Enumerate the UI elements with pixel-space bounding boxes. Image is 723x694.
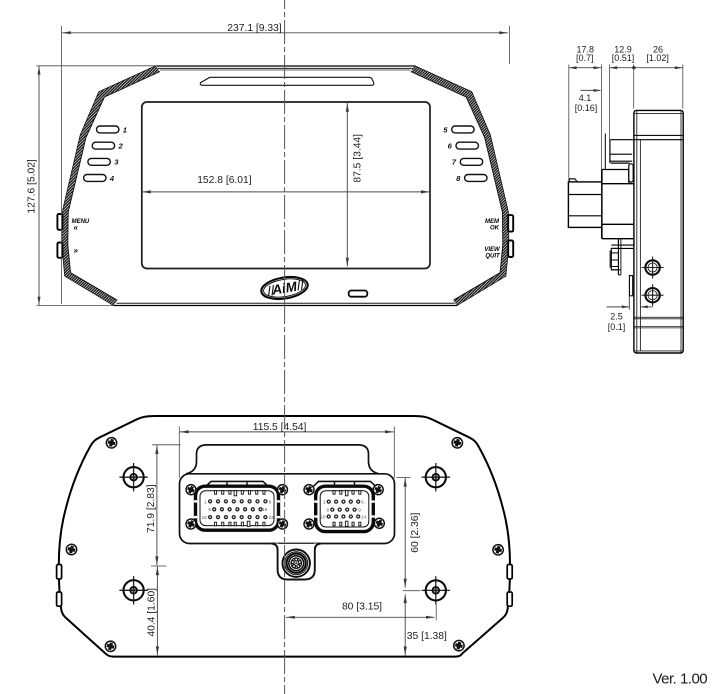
svg-text:4.1: 4.1 bbox=[579, 93, 592, 103]
svg-text:40.4 [1.60]: 40.4 [1.60] bbox=[146, 588, 157, 637]
svg-text:QUIT: QUIT bbox=[485, 254, 501, 260]
svg-text:14: 14 bbox=[361, 514, 367, 519]
svg-text:1: 1 bbox=[123, 125, 127, 134]
svg-text:15: 15 bbox=[262, 507, 268, 512]
svg-text:[0.7]: [0.7] bbox=[576, 53, 594, 63]
svg-text:2.5: 2.5 bbox=[610, 311, 623, 321]
svg-text:[0.16]: [0.16] bbox=[575, 103, 598, 113]
svg-text:60 [2.36]: 60 [2.36] bbox=[410, 513, 421, 553]
svg-text:10: 10 bbox=[320, 514, 326, 519]
svg-text:[0.1]: [0.1] bbox=[608, 322, 626, 332]
svg-text:23: 23 bbox=[269, 515, 275, 520]
svg-text:[0.51]: [0.51] bbox=[612, 53, 635, 63]
svg-text:5: 5 bbox=[361, 500, 364, 505]
svg-text:8: 8 bbox=[269, 499, 272, 504]
svg-text:237.1 [9.33]: 237.1 [9.33] bbox=[227, 23, 282, 34]
svg-text:16: 16 bbox=[202, 515, 208, 520]
svg-text:1: 1 bbox=[323, 500, 326, 505]
svg-text:Ver. 1.00: Ver. 1.00 bbox=[652, 671, 707, 688]
svg-text:127.6 [5.02]: 127.6 [5.02] bbox=[26, 159, 37, 214]
svg-text:6: 6 bbox=[326, 508, 329, 513]
svg-text:MEM: MEM bbox=[485, 219, 500, 225]
svg-text:152.8 [6.01]: 152.8 [6.01] bbox=[197, 175, 252, 186]
svg-text:«: « bbox=[74, 223, 79, 232]
svg-text:35 [1.38]: 35 [1.38] bbox=[407, 631, 447, 642]
svg-text:71.9 [2.83]: 71.9 [2.83] bbox=[146, 484, 157, 533]
svg-text:VIEW: VIEW bbox=[484, 247, 501, 253]
svg-text:OK: OK bbox=[490, 226, 500, 232]
svg-text:2: 2 bbox=[118, 142, 124, 151]
svg-text:9: 9 bbox=[358, 508, 361, 513]
svg-text:1: 1 bbox=[204, 499, 207, 504]
svg-text:[1.02]: [1.02] bbox=[646, 53, 669, 63]
svg-text:115.5 [4.54]: 115.5 [4.54] bbox=[253, 422, 307, 433]
svg-text:87.5 [3.44]: 87.5 [3.44] bbox=[353, 134, 364, 183]
svg-text:4: 4 bbox=[109, 174, 115, 183]
svg-text:80 [3.15]: 80 [3.15] bbox=[342, 602, 382, 613]
svg-text:»: » bbox=[74, 246, 79, 255]
svg-text:9: 9 bbox=[208, 507, 211, 512]
